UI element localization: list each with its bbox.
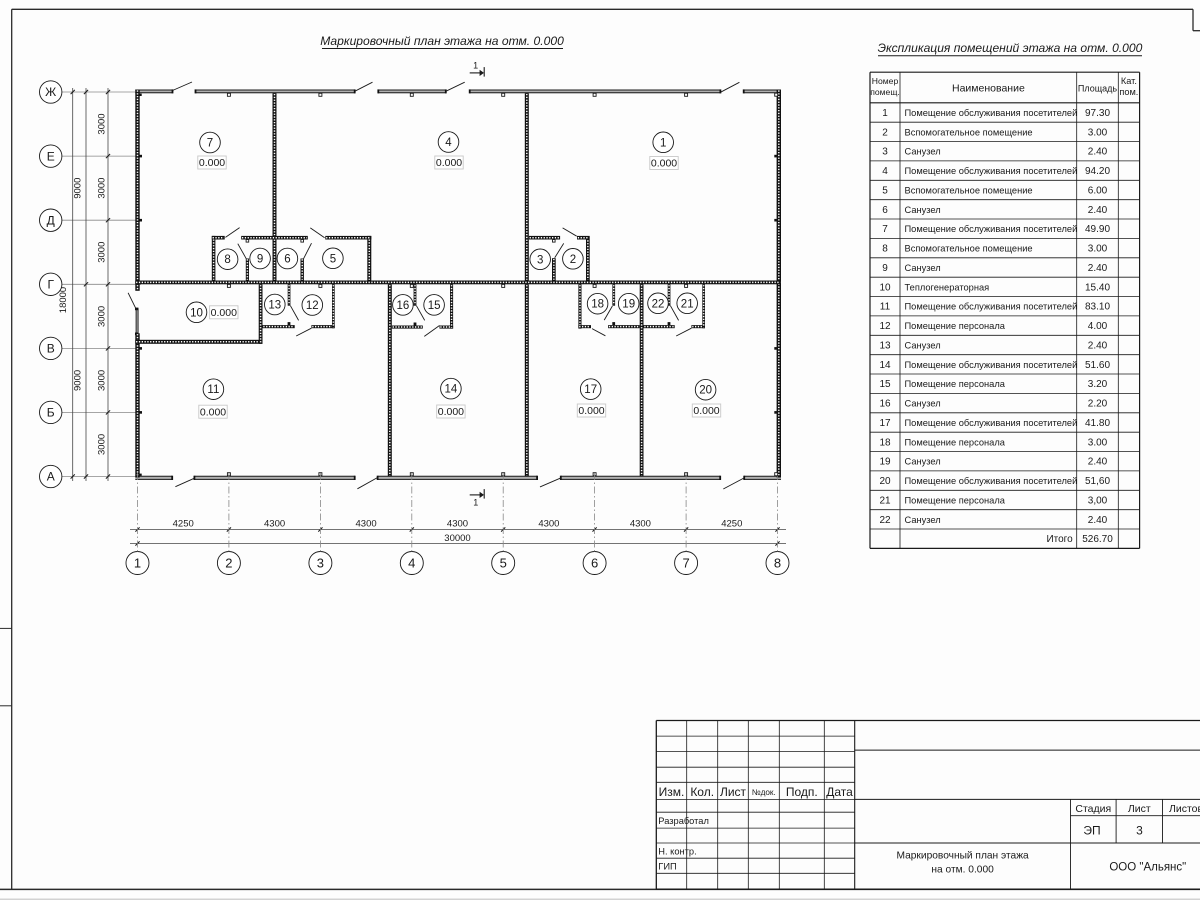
- svg-text:18: 18: [879, 437, 891, 448]
- svg-text:Экспликация помещений этажа на: Экспликация помещений этажа на отм. 0.00…: [878, 41, 1143, 55]
- svg-text:Наименование: Наименование: [952, 83, 1025, 95]
- svg-text:Санузел: Санузел: [905, 515, 941, 525]
- svg-text:14: 14: [879, 360, 891, 371]
- svg-text:13: 13: [879, 341, 891, 352]
- svg-text:3000: 3000: [96, 113, 107, 134]
- svg-text:22: 22: [879, 515, 891, 526]
- svg-text:1: 1: [134, 555, 141, 570]
- svg-text:Теплогенераторная: Теплогенераторная: [905, 282, 990, 292]
- svg-text:на отм. 0.000: на отм. 0.000: [931, 865, 994, 876]
- svg-text:4: 4: [408, 555, 415, 570]
- svg-text:15: 15: [879, 379, 891, 390]
- svg-text:4: 4: [882, 166, 888, 177]
- svg-text:Помещение обслуживания посетит: Помещение обслуживания посетителей: [905, 360, 1078, 370]
- svg-text:526.70: 526.70: [1082, 534, 1113, 545]
- svg-text:11: 11: [880, 302, 891, 313]
- svg-text:2.40: 2.40: [1088, 457, 1108, 468]
- svg-text:Санузел: Санузел: [905, 457, 941, 467]
- svg-text:16: 16: [879, 399, 891, 410]
- svg-text:6: 6: [591, 555, 598, 570]
- svg-text:2: 2: [882, 127, 888, 138]
- svg-text:3: 3: [537, 254, 543, 266]
- svg-text:2: 2: [225, 555, 232, 570]
- svg-text:1: 1: [473, 61, 478, 71]
- svg-text:Лист: Лист: [720, 785, 747, 799]
- svg-text:13: 13: [268, 300, 281, 312]
- svg-text:3000: 3000: [96, 242, 107, 263]
- svg-text:2.40: 2.40: [1088, 341, 1108, 352]
- svg-text:51,60: 51,60: [1085, 476, 1110, 487]
- svg-text:Лист: Лист: [1128, 803, 1151, 815]
- svg-text:0.000: 0.000: [211, 307, 237, 319]
- svg-text:Помещение обслуживания посетит: Помещение обслуживания посетителей: [905, 476, 1078, 486]
- svg-text:Помещение персонала: Помещение персонала: [905, 437, 1006, 447]
- svg-text:7: 7: [207, 138, 213, 150]
- svg-text:ООО "Альянс": ООО "Альянс": [1109, 861, 1186, 873]
- svg-text:4300: 4300: [356, 519, 377, 530]
- svg-text:0.000: 0.000: [438, 406, 464, 418]
- svg-text:3000: 3000: [96, 434, 107, 455]
- svg-text:Вспомогательное помещение: Вспомогательное помещение: [905, 127, 1033, 137]
- svg-text:51.60: 51.60: [1085, 360, 1110, 371]
- svg-text:4250: 4250: [173, 519, 194, 530]
- svg-text:Помещение обслуживания посетит: Помещение обслуживания посетителей: [905, 418, 1078, 428]
- svg-text:5: 5: [500, 555, 507, 570]
- svg-text:0.000: 0.000: [199, 157, 225, 169]
- svg-text:Стадия: Стадия: [1075, 803, 1111, 815]
- svg-text:Помещение персонала: Помещение персонала: [905, 379, 1006, 389]
- svg-text:Санузел: Санузел: [905, 263, 941, 273]
- svg-text:4: 4: [445, 137, 452, 149]
- svg-text:9: 9: [882, 263, 888, 274]
- svg-text:3.00: 3.00: [1088, 437, 1108, 448]
- svg-text:1: 1: [882, 108, 888, 119]
- svg-text:Итого: Итого: [1046, 534, 1073, 545]
- svg-text:№док.: №док.: [752, 788, 776, 797]
- svg-text:1: 1: [473, 498, 478, 508]
- svg-text:Вспомогательное помещение: Вспомогательное помещение: [905, 186, 1033, 196]
- svg-text:94.20: 94.20: [1085, 166, 1110, 177]
- svg-text:49.90: 49.90: [1085, 224, 1110, 235]
- svg-text:10: 10: [190, 307, 203, 319]
- svg-text:3.20: 3.20: [1088, 379, 1108, 390]
- svg-text:12: 12: [306, 300, 319, 312]
- svg-text:Ж: Ж: [45, 85, 56, 99]
- svg-text:9000: 9000: [73, 370, 84, 391]
- svg-text:А: А: [47, 470, 55, 484]
- svg-text:Н. контр.: Н. контр.: [658, 847, 696, 857]
- svg-text:4300: 4300: [630, 519, 651, 530]
- svg-text:Маркировочный план этажа: Маркировочный план этажа: [897, 851, 1030, 862]
- svg-text:9: 9: [257, 254, 263, 266]
- svg-text:0.000: 0.000: [436, 157, 462, 169]
- svg-text:Вспомогательное помещение: Вспомогательное помещение: [905, 244, 1033, 254]
- svg-text:20: 20: [879, 476, 891, 487]
- svg-text:Б: Б: [47, 406, 55, 420]
- svg-text:пом.: пом.: [1119, 87, 1138, 97]
- svg-text:18: 18: [591, 299, 604, 311]
- svg-text:ЭП: ЭП: [1083, 824, 1100, 838]
- svg-text:3000: 3000: [96, 370, 107, 391]
- svg-text:2.40: 2.40: [1088, 147, 1108, 158]
- svg-text:41.80: 41.80: [1085, 418, 1110, 429]
- svg-text:0.000: 0.000: [578, 405, 604, 417]
- svg-text:Помещение обслуживания посетит: Помещение обслуживания посетителей: [905, 224, 1078, 234]
- svg-text:Помещение обслуживания посетит: Помещение обслуживания посетителей: [905, 108, 1078, 118]
- svg-text:ГИП: ГИП: [658, 862, 676, 872]
- svg-text:8: 8: [774, 555, 781, 570]
- svg-text:11: 11: [207, 384, 219, 396]
- svg-text:Помещение обслуживания посетит: Помещение обслуживания посетителей: [905, 302, 1078, 312]
- svg-text:Д: Д: [47, 213, 55, 227]
- svg-text:5: 5: [330, 253, 336, 265]
- svg-text:6.00: 6.00: [1088, 186, 1108, 197]
- svg-text:0.000: 0.000: [651, 158, 677, 170]
- svg-text:3: 3: [1136, 824, 1143, 838]
- svg-text:Кат.: Кат.: [1121, 76, 1137, 86]
- svg-text:8: 8: [882, 244, 888, 255]
- svg-text:14: 14: [445, 384, 458, 396]
- svg-text:Маркировочный план этажа на от: Маркировочный план этажа на отм. 0.000: [320, 34, 564, 48]
- svg-text:3,00: 3,00: [1088, 496, 1108, 507]
- svg-text:7: 7: [882, 224, 888, 235]
- svg-text:3000: 3000: [96, 306, 107, 327]
- svg-text:16: 16: [397, 300, 410, 312]
- svg-text:Дата: Дата: [826, 785, 853, 799]
- svg-text:Подп.: Подп.: [786, 785, 818, 799]
- svg-text:Кол.: Кол.: [690, 785, 714, 799]
- svg-text:3000: 3000: [96, 178, 107, 199]
- svg-text:Санузел: Санузел: [905, 147, 941, 157]
- svg-text:19: 19: [622, 299, 635, 311]
- svg-text:12: 12: [879, 321, 891, 332]
- svg-text:3: 3: [882, 147, 888, 158]
- svg-text:10: 10: [879, 282, 891, 293]
- svg-text:2.40: 2.40: [1088, 205, 1108, 216]
- svg-text:Номер: Номер: [872, 76, 899, 86]
- svg-text:4300: 4300: [264, 519, 285, 530]
- svg-text:Санузел: Санузел: [905, 205, 941, 215]
- svg-text:6: 6: [882, 205, 888, 216]
- svg-text:21: 21: [681, 298, 694, 310]
- svg-text:9000: 9000: [73, 178, 84, 199]
- svg-text:2: 2: [570, 254, 576, 266]
- svg-text:19: 19: [879, 457, 891, 468]
- svg-text:6: 6: [284, 254, 290, 266]
- svg-text:5: 5: [882, 186, 888, 197]
- svg-text:17: 17: [584, 384, 597, 396]
- svg-text:2.40: 2.40: [1088, 263, 1108, 274]
- svg-text:1: 1: [660, 137, 666, 149]
- svg-text:Разработал: Разработал: [658, 816, 709, 826]
- svg-text:15: 15: [428, 300, 441, 312]
- svg-text:В: В: [47, 342, 55, 356]
- svg-text:7: 7: [682, 555, 689, 570]
- svg-text:4250: 4250: [721, 519, 742, 530]
- svg-text:4300: 4300: [447, 519, 468, 530]
- svg-text:2.40: 2.40: [1088, 515, 1108, 526]
- svg-text:Площадь: Площадь: [1078, 84, 1117, 94]
- svg-text:Санузел: Санузел: [905, 399, 941, 409]
- svg-text:Помещение персонала: Помещение персонала: [905, 321, 1006, 331]
- svg-text:0.000: 0.000: [693, 405, 719, 417]
- svg-text:3.00: 3.00: [1088, 244, 1108, 255]
- svg-text:20: 20: [699, 385, 712, 397]
- svg-text:Е: Е: [47, 149, 55, 163]
- svg-text:Г: Г: [47, 278, 54, 292]
- svg-text:Санузел: Санузел: [905, 341, 941, 351]
- svg-text:22: 22: [652, 298, 665, 310]
- svg-text:3.00: 3.00: [1088, 127, 1108, 138]
- svg-text:Листов: Листов: [1169, 803, 1200, 815]
- svg-text:Изм.: Изм.: [659, 785, 685, 799]
- svg-text:21: 21: [879, 496, 891, 507]
- svg-text:Помещение обслуживания посетит: Помещение обслуживания посетителей: [905, 166, 1078, 176]
- svg-text:4300: 4300: [538, 519, 559, 530]
- svg-text:3: 3: [317, 555, 324, 570]
- svg-text:17: 17: [879, 418, 891, 429]
- svg-text:83.10: 83.10: [1085, 302, 1110, 313]
- svg-text:30000: 30000: [444, 533, 470, 544]
- svg-text:0.000: 0.000: [200, 406, 226, 418]
- svg-text:4.00: 4.00: [1088, 321, 1108, 332]
- svg-text:97.30: 97.30: [1085, 108, 1110, 119]
- svg-text:помещ.: помещ.: [870, 87, 900, 97]
- svg-text:8: 8: [224, 254, 230, 266]
- svg-text:15.40: 15.40: [1085, 282, 1110, 293]
- svg-text:2.20: 2.20: [1088, 399, 1108, 410]
- svg-text:Помещение персонала: Помещение персонала: [905, 496, 1006, 506]
